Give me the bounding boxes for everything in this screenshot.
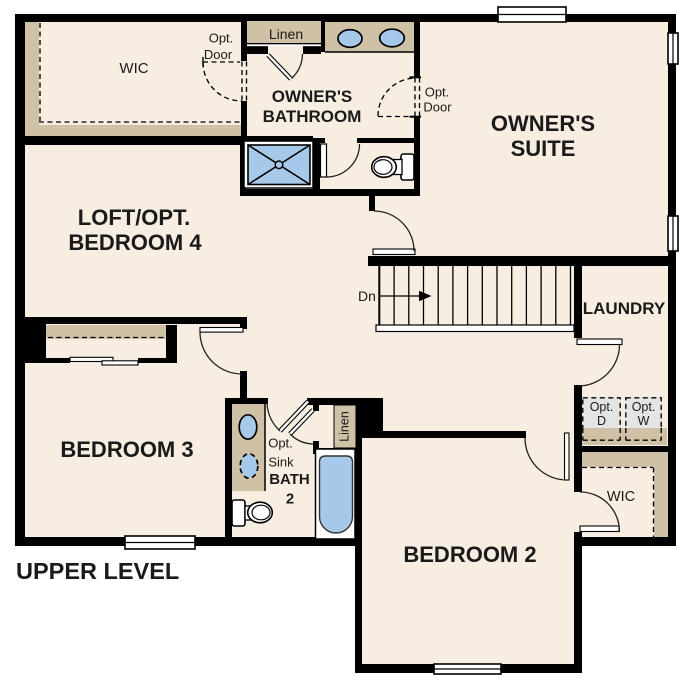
svg-text:Door: Door [204, 47, 233, 62]
svg-text:Dn: Dn [358, 288, 376, 304]
svg-text:BEDROOM 4: BEDROOM 4 [68, 230, 202, 255]
svg-text:Linen: Linen [269, 26, 303, 42]
svg-text:WIC: WIC [119, 60, 148, 77]
svg-text:Opt.: Opt. [268, 436, 293, 451]
svg-text:D: D [597, 414, 606, 428]
svg-text:2: 2 [286, 491, 294, 508]
svg-text:Door: Door [423, 100, 452, 115]
svg-text:Opt.: Opt. [632, 400, 656, 414]
svg-text:BEDROOM 2: BEDROOM 2 [403, 542, 536, 567]
svg-text:LOFT/OPT.: LOFT/OPT. [78, 205, 190, 230]
svg-text:Opt.: Opt. [209, 31, 234, 46]
svg-text:OWNER'S: OWNER'S [272, 87, 353, 106]
svg-text:OWNER'S: OWNER'S [491, 111, 595, 136]
svg-text:W: W [638, 414, 650, 428]
svg-text:UPPER LEVEL: UPPER LEVEL [16, 558, 179, 584]
svg-text:Sink: Sink [268, 455, 294, 470]
svg-text:LAUNDRY: LAUNDRY [583, 299, 666, 318]
svg-text:Opt.: Opt. [590, 400, 614, 414]
svg-text:SUITE: SUITE [511, 136, 576, 161]
svg-text:Linen: Linen [337, 411, 351, 442]
svg-text:BATHROOM: BATHROOM [263, 107, 362, 126]
svg-text:Opt.: Opt. [425, 85, 450, 100]
svg-text:WIC: WIC [607, 489, 635, 505]
svg-text:BATH: BATH [269, 471, 310, 488]
svg-text:BEDROOM 3: BEDROOM 3 [60, 437, 193, 462]
